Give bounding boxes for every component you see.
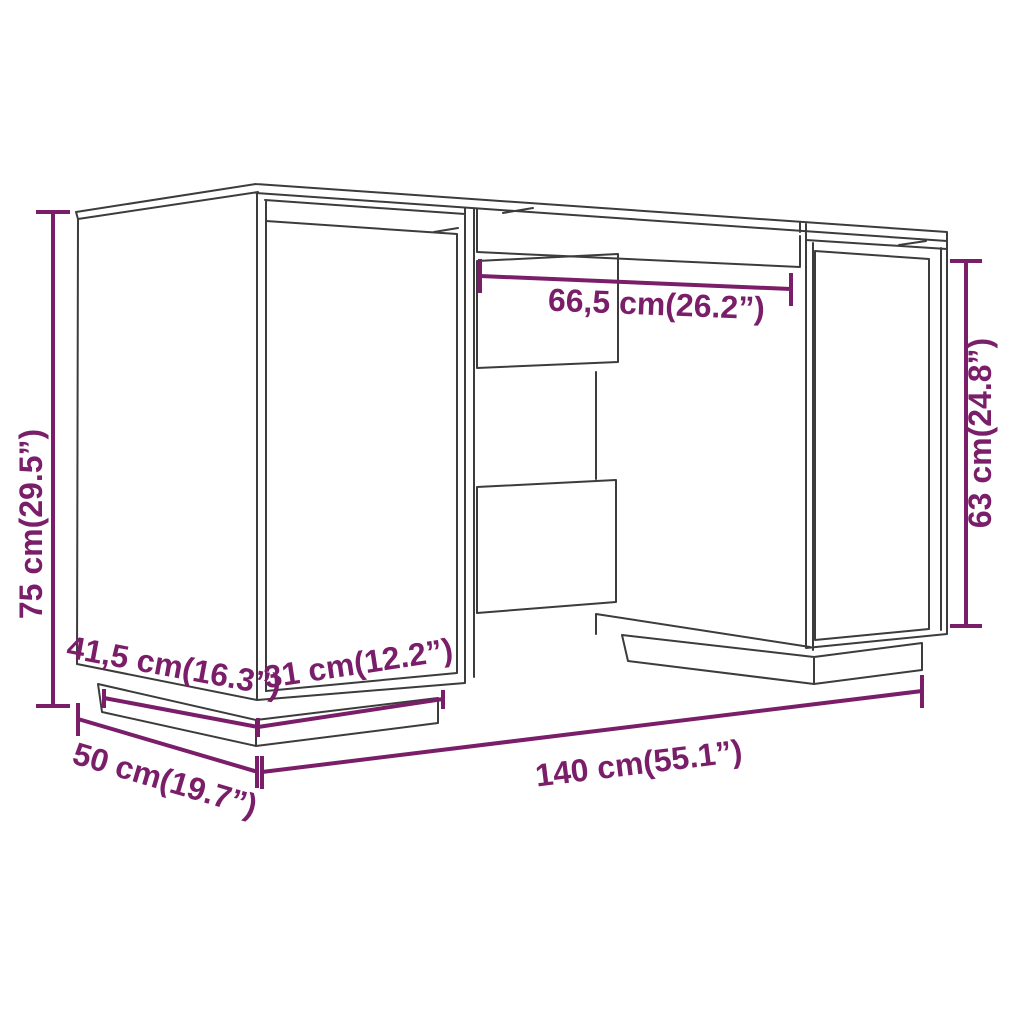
right-door-handle-groove [899, 241, 926, 245]
label-height: 75 cm(29.5”) [13, 429, 49, 619]
desk-dimension-diagram: 75 cm(29.5”) 66,5 cm(26.2”) 63 cm(24.8”)… [0, 0, 1024, 1024]
dimension-diagram-canvas: 75 cm(29.5”) 66,5 cm(26.2”) 63 cm(24.8”)… [0, 0, 1024, 1024]
left-cabinet [77, 193, 474, 700]
label-total-depth: 50 cm(19.7”) [69, 735, 262, 824]
label-total-width: 140 cm(55.1”) [533, 733, 744, 794]
right-cabinet-door [815, 251, 929, 640]
right-plinth [622, 635, 922, 684]
right-cabinet [806, 234, 947, 650]
label-cabinet-height: 63 cm(24.8”) [962, 338, 998, 528]
label-top-clearance: 66,5 cm(26.2”) [547, 282, 765, 327]
label-base-depth: 41,5 cm(16.3”) [64, 629, 284, 704]
left-door-handle-groove [434, 228, 458, 232]
left-cabinet-door [266, 221, 457, 691]
